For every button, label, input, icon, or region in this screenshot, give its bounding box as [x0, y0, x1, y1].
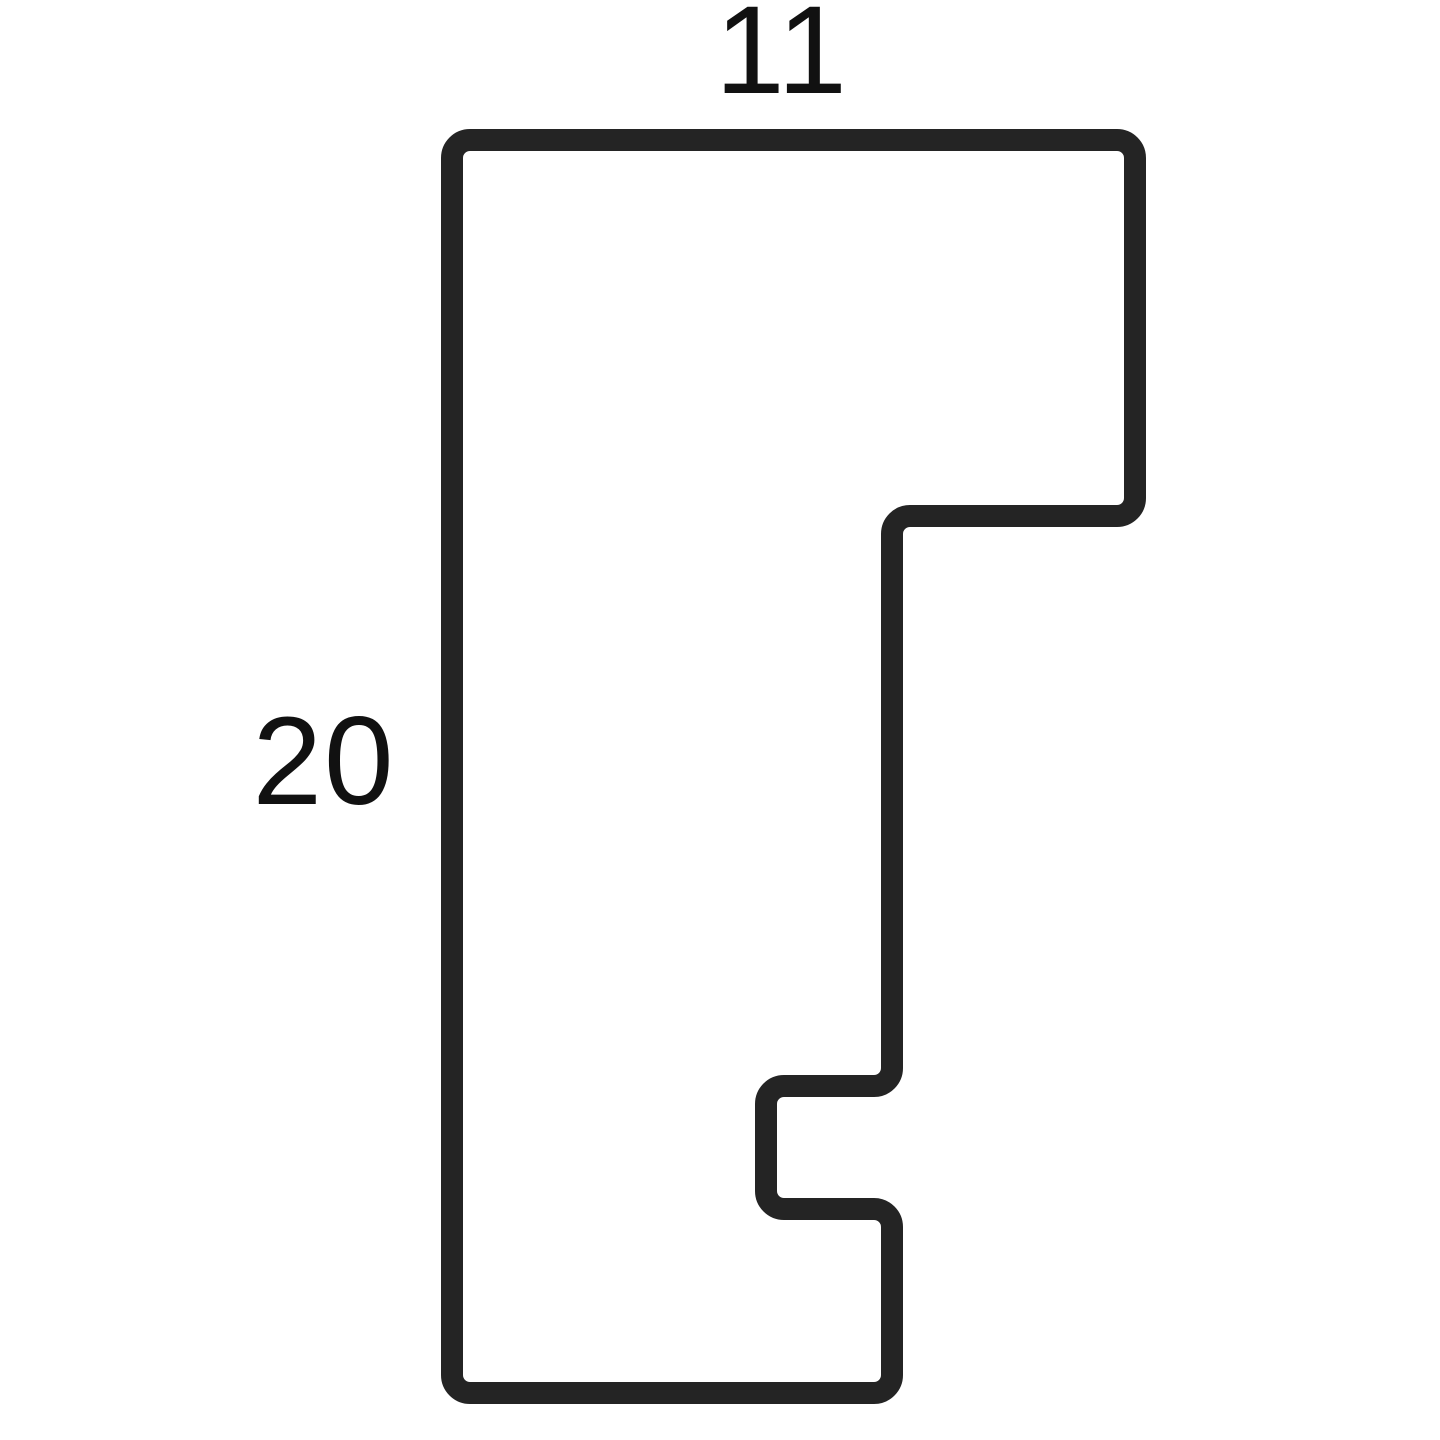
- moulding-profile-outline: [452, 140, 1135, 1393]
- profile-diagram: 11 20: [0, 0, 1440, 1440]
- profile-drawing-canvas: 11 20: [0, 0, 1440, 1440]
- width-dimension-label: 11: [715, 0, 849, 120]
- height-dimension-label: 20: [252, 692, 395, 831]
